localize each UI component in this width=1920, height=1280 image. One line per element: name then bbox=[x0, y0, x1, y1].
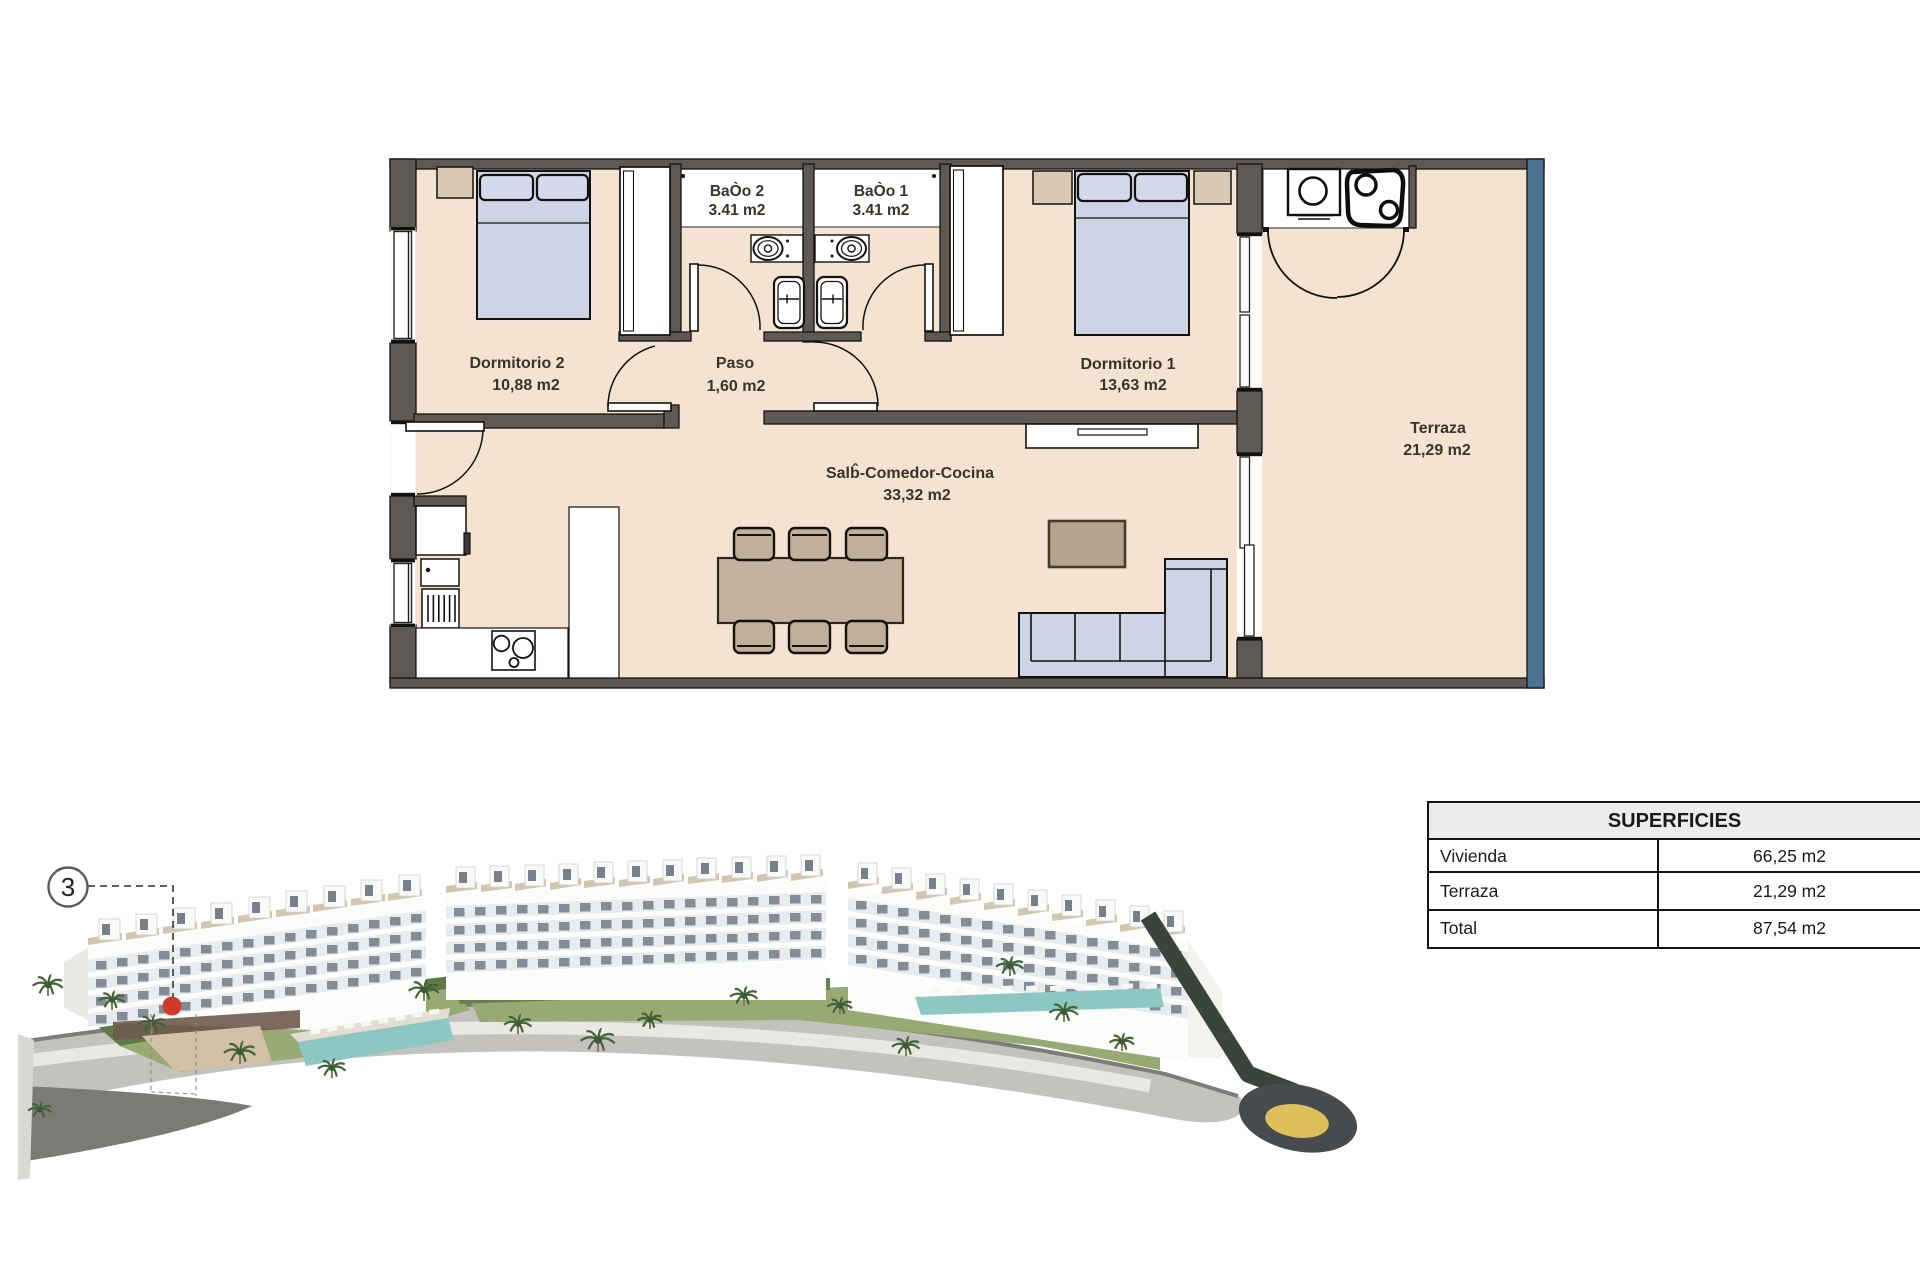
svg-text:Dormitorio 2: Dormitorio 2 bbox=[469, 355, 564, 372]
svg-text:3.41 m2: 3.41 m2 bbox=[709, 202, 766, 219]
svg-text:Terraza: Terraza bbox=[1410, 420, 1466, 437]
svg-text:1,60 m2: 1,60 m2 bbox=[707, 378, 766, 395]
svg-text:3: 3 bbox=[61, 872, 75, 902]
svg-text:21,29 m2: 21,29 m2 bbox=[1403, 442, 1471, 459]
svg-text:Paso: Paso bbox=[716, 355, 754, 372]
svg-text:10,88 m2: 10,88 m2 bbox=[492, 377, 560, 394]
svg-text:13,63 m2: 13,63 m2 bbox=[1099, 377, 1167, 394]
svg-text:33,32 m2: 33,32 m2 bbox=[883, 487, 951, 504]
svg-text:BaÒo 1: BaÒo 1 bbox=[854, 182, 909, 200]
svg-text:BaÒo 2: BaÒo 2 bbox=[710, 182, 764, 200]
svg-text:Salb̂-Comedor-Cocina: Salb̂-Comedor-Cocina bbox=[826, 462, 994, 482]
svg-text:Dormitorio 1: Dormitorio 1 bbox=[1080, 356, 1175, 373]
svg-text:3.41 m2: 3.41 m2 bbox=[853, 202, 910, 219]
